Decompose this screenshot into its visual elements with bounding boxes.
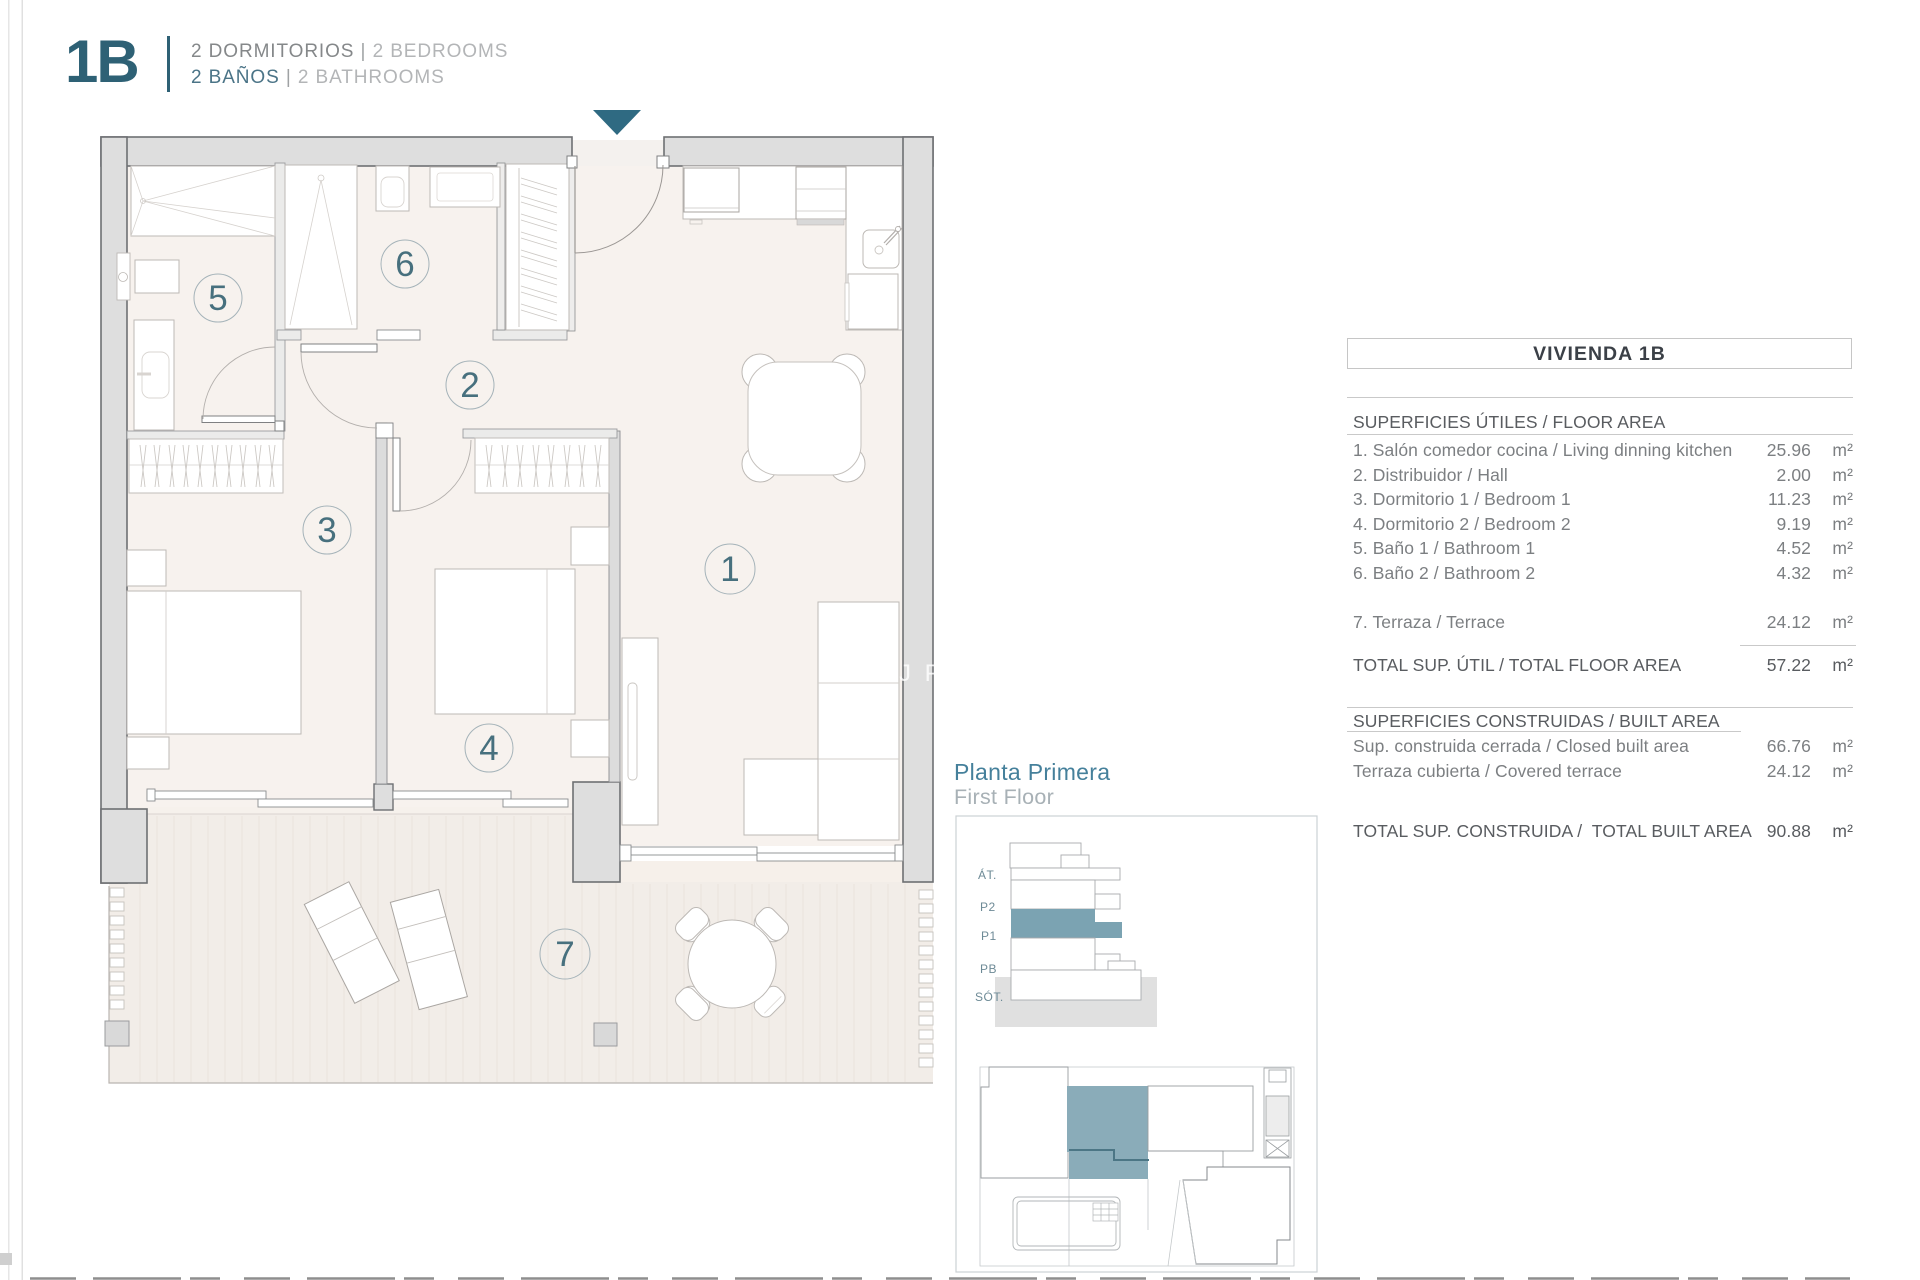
svg-text:7: 7 (555, 935, 574, 974)
svg-text:J PR: J PR (899, 660, 965, 687)
svg-text:4: 4 (479, 729, 498, 768)
svg-text:ÁT.: ÁT. (978, 867, 997, 882)
svg-text:SÓT.: SÓT. (975, 989, 1004, 1004)
svg-text:5: 5 (208, 279, 227, 318)
svg-text:2: 2 (460, 366, 479, 405)
svg-text:3: 3 (317, 511, 336, 550)
svg-text:6: 6 (395, 245, 414, 284)
svg-text:P1: P1 (981, 929, 997, 943)
svg-text:1: 1 (720, 550, 739, 589)
svg-text:PB: PB (980, 962, 997, 976)
svg-text:P2: P2 (980, 900, 996, 914)
